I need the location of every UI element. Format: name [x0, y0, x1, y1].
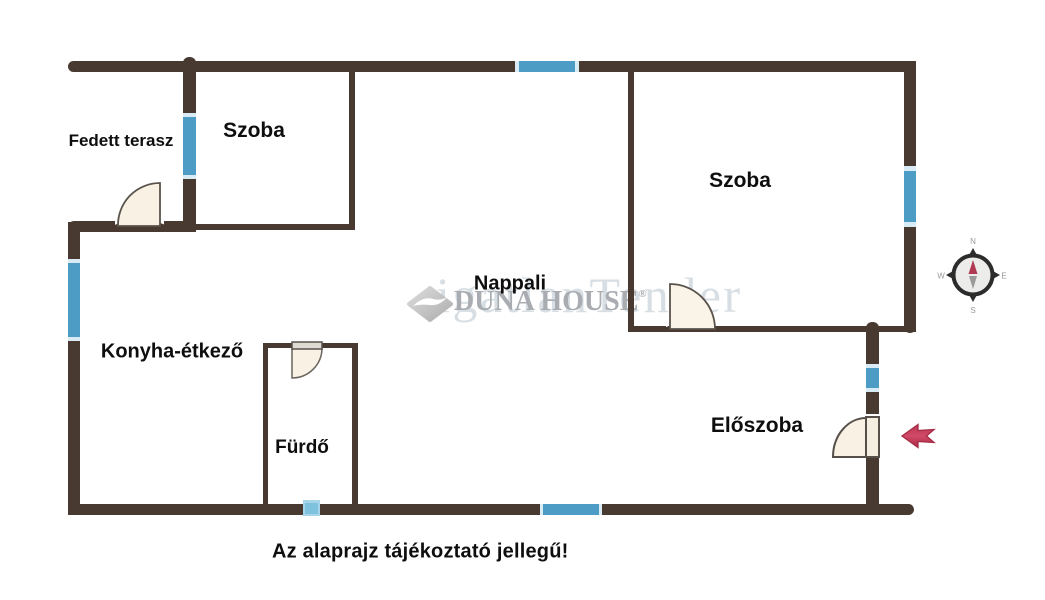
svg-text:N: N	[970, 237, 976, 246]
svg-text:E: E	[1001, 272, 1006, 281]
svg-text:S: S	[970, 306, 975, 315]
svg-text:W: W	[937, 272, 945, 281]
